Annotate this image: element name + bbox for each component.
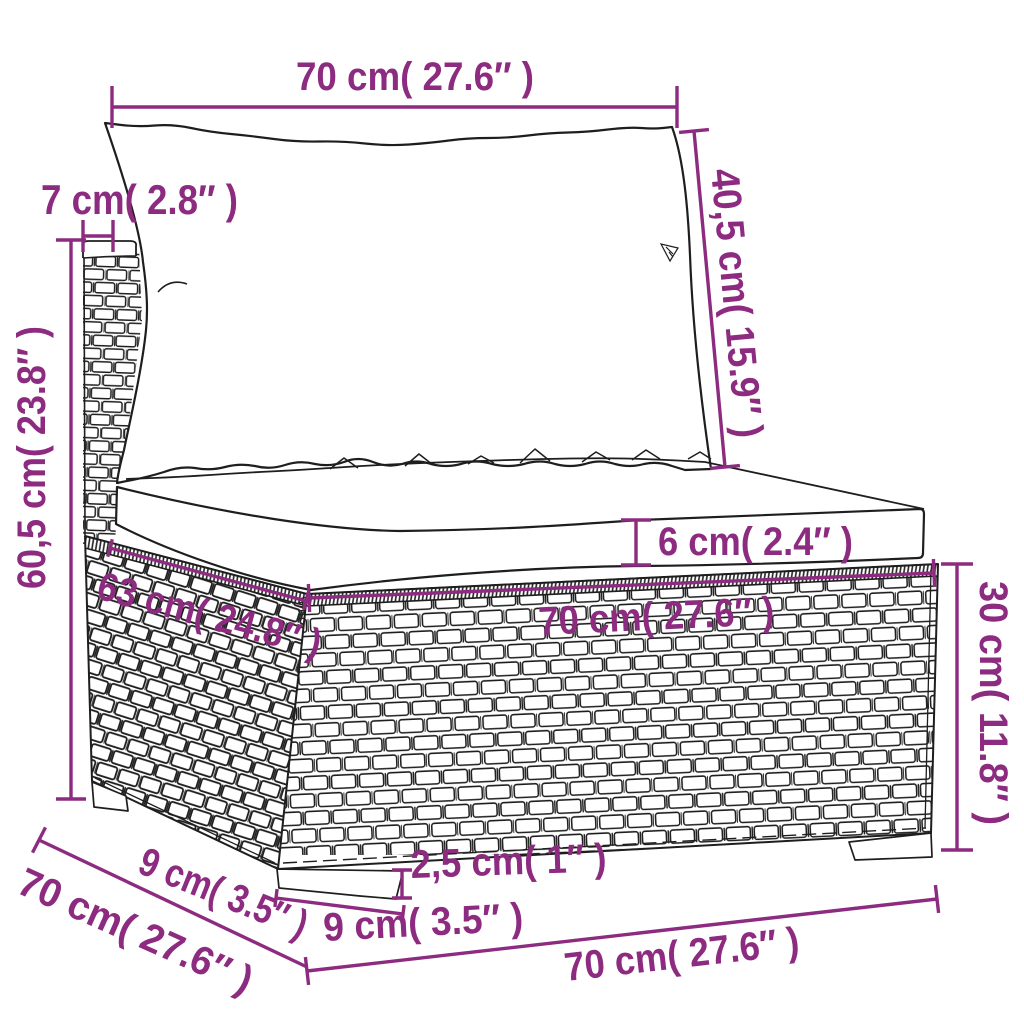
svg-text:60,5 cm( 23.8″ ): 60,5 cm( 23.8″ ) (10, 326, 54, 589)
svg-text:6 cm( 2.4″ ): 6 cm( 2.4″ ) (658, 520, 853, 564)
svg-text:7 cm( 2.8″ ): 7 cm( 2.8″ ) (41, 176, 238, 223)
svg-text:30 cm( 11.8″ ): 30 cm( 11.8″ ) (971, 581, 1015, 825)
svg-text:2,5 cm( 1″ ): 2,5 cm( 1″ ) (410, 836, 607, 887)
svg-text:70 cm( 27.6″ ): 70 cm( 27.6″ ) (296, 55, 534, 99)
